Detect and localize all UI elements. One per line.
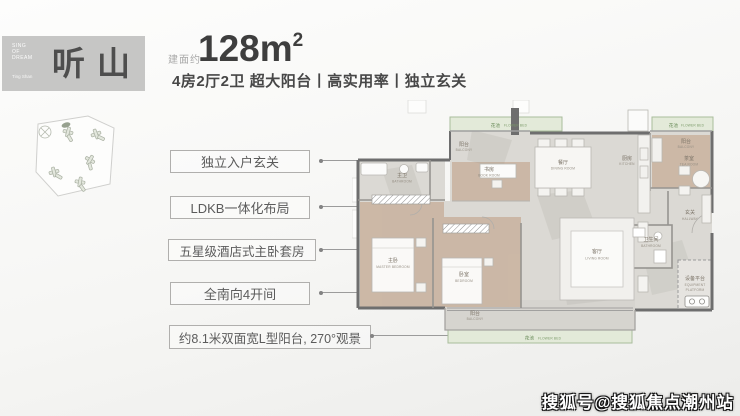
dining-room-label: 餐厅 <box>558 159 568 166</box>
watermark: 搜狐号@搜狐焦点潮州站 <box>542 389 734 413</box>
flower-bed-label-en: FLOWER BED <box>538 336 562 340</box>
page: SING OF DREAM Ting Shan 听山 建面约 128m2 4房2… <box>0 0 740 416</box>
site-sketch-svg <box>28 110 120 202</box>
feature-south-facing: 全南向4开间 <box>170 282 310 305</box>
balcony-label: 阳台 <box>459 141 469 148</box>
flower-bed-label: 花池 <box>491 122 501 129</box>
dining-room-label-en: DINING ROOM <box>551 167 575 171</box>
brand-tagline-line: DREAM <box>12 55 33 61</box>
kitchen-label-en: KITCHEN <box>619 162 635 166</box>
master-bedroom-label: 主卧 <box>388 257 398 264</box>
bedroom-label: 卧室 <box>459 271 469 278</box>
flower-bed-label-en: FLOWER BED <box>504 124 528 128</box>
book-room-label-en: BOOK ROOM <box>478 174 500 178</box>
feature-ldkb-layout: LDKB一体化布局 <box>170 196 310 219</box>
balcony-label-en: BALCONY <box>456 148 473 152</box>
tea-room-label: 茶室 <box>684 155 694 162</box>
area-superscript: 2 <box>293 30 304 51</box>
unit-subtitle: 4房2厅2卫 超大阳台丨高实用率丨独立玄关 <box>172 70 467 91</box>
site-sketch <box>28 110 120 202</box>
balcony-label: 阳台 <box>470 310 480 317</box>
flower-bed-label: 花池 <box>669 122 679 129</box>
equipment-label: 设备平台 <box>685 275 705 282</box>
flower-bed-label: 花池 <box>525 335 535 342</box>
brand-tagline: SING OF DREAM <box>12 43 33 61</box>
balcony-label-en: BALCONY <box>678 145 695 149</box>
master-bath-label: 主卫 <box>397 172 407 179</box>
area-value: 128m2 <box>198 28 303 70</box>
master-bedroom-label-en: MASTER BEDROOM <box>376 265 410 269</box>
flower-bed-label-en: FLOWER BED <box>681 124 705 128</box>
hallway-label: 玄关 <box>685 209 695 216</box>
feature-entry-foyer: 独立入户玄关 <box>170 150 310 173</box>
feature-l-balcony: 约8.1米双面宽L型阳台, 270°观景 <box>169 325 371 349</box>
equipment-label-en1: EQUIPMENT <box>685 283 706 287</box>
hallway-label-en: HALLWAY <box>682 217 699 221</box>
feature-master-suite: 五星级酒店式主卧套房 <box>168 239 316 261</box>
brand-box: SING OF DREAM Ting Shan 听山 <box>2 36 145 91</box>
tea-room-label-en: TEA ROOM <box>680 163 699 167</box>
book-room-label: 书房 <box>484 166 494 173</box>
living-room-label: 客厅 <box>592 248 602 255</box>
area-label: 建面约 <box>168 51 201 66</box>
balcony-label: 阳台 <box>681 138 691 145</box>
living-room-label-en: LIVING ROOM <box>585 257 609 261</box>
master-bath-label-en: BATHROOM <box>392 180 412 184</box>
brand-name: 听山 <box>52 36 142 91</box>
balcony-label-en: BALCONY <box>467 317 484 321</box>
area-number: 128m <box>198 28 293 69</box>
bathroom2-label: 卫生间 <box>643 236 658 243</box>
equipment-label-en2: PLATFORM <box>686 288 705 292</box>
bedroom-label-en: BEDROOM <box>455 279 473 283</box>
floor-plan: 花池 FLOWER BED 花池 FLOWER BED 花池 FLOWER BE… <box>352 100 720 365</box>
kitchen-label: 厨房 <box>622 155 632 162</box>
bathroom2-label-en: BATHROOM <box>641 244 661 248</box>
brand-caption: Ting Shan <box>12 74 32 79</box>
